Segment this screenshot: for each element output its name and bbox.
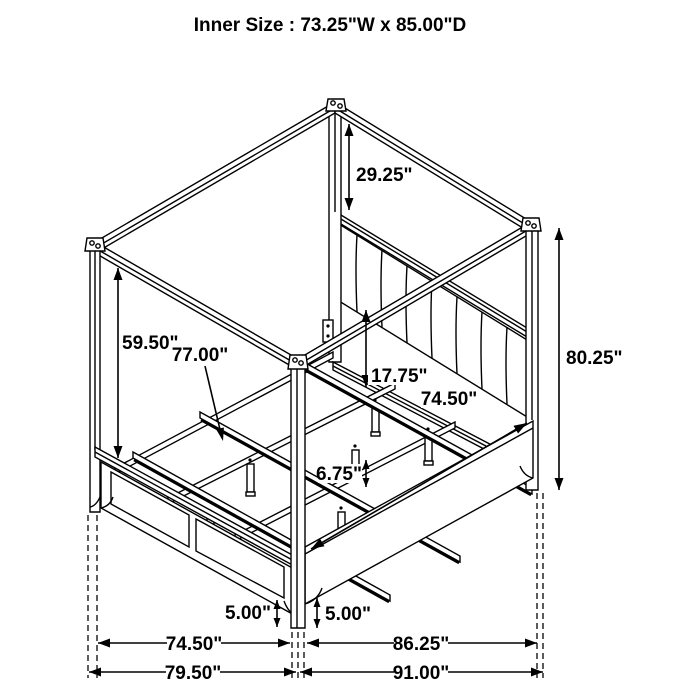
bed-dimension-diagram-page: 29.25" 59.50" 80.25" 17.75" 77.00" 74.50… [0,0,700,700]
dim-slat-length: 77.00" [172,345,229,366]
dim-width-inner: 74.50" [166,634,223,655]
back-post [323,110,341,362]
front-post [291,366,305,628]
left-post [90,250,100,512]
dim-foot-clearance-left: 5.00" [225,603,271,624]
dim-foot-clearance-right: 5.00" [325,604,371,625]
page-title: Inner Size : 73.25"W x 85.00"D [194,15,467,36]
dim-leg-height: 6.75" [316,464,362,485]
dim-depth-overall: 91.00" [393,663,450,684]
dim-width-overall: 79.50" [165,663,222,684]
dim-headboard-gap: 17.75" [371,366,428,387]
dim-depth-inner: 86.25" [393,634,450,655]
dim-side-rail: 74.50" [421,389,478,410]
dim-canopy-drop: 29.25" [356,165,413,186]
dim-post-height: 59.50" [122,333,179,354]
dim-overall-height: 80.25" [566,348,623,369]
canopy-bed-line-drawing: 29.25" 59.50" 80.25" 17.75" 77.00" 74.50… [0,0,700,700]
